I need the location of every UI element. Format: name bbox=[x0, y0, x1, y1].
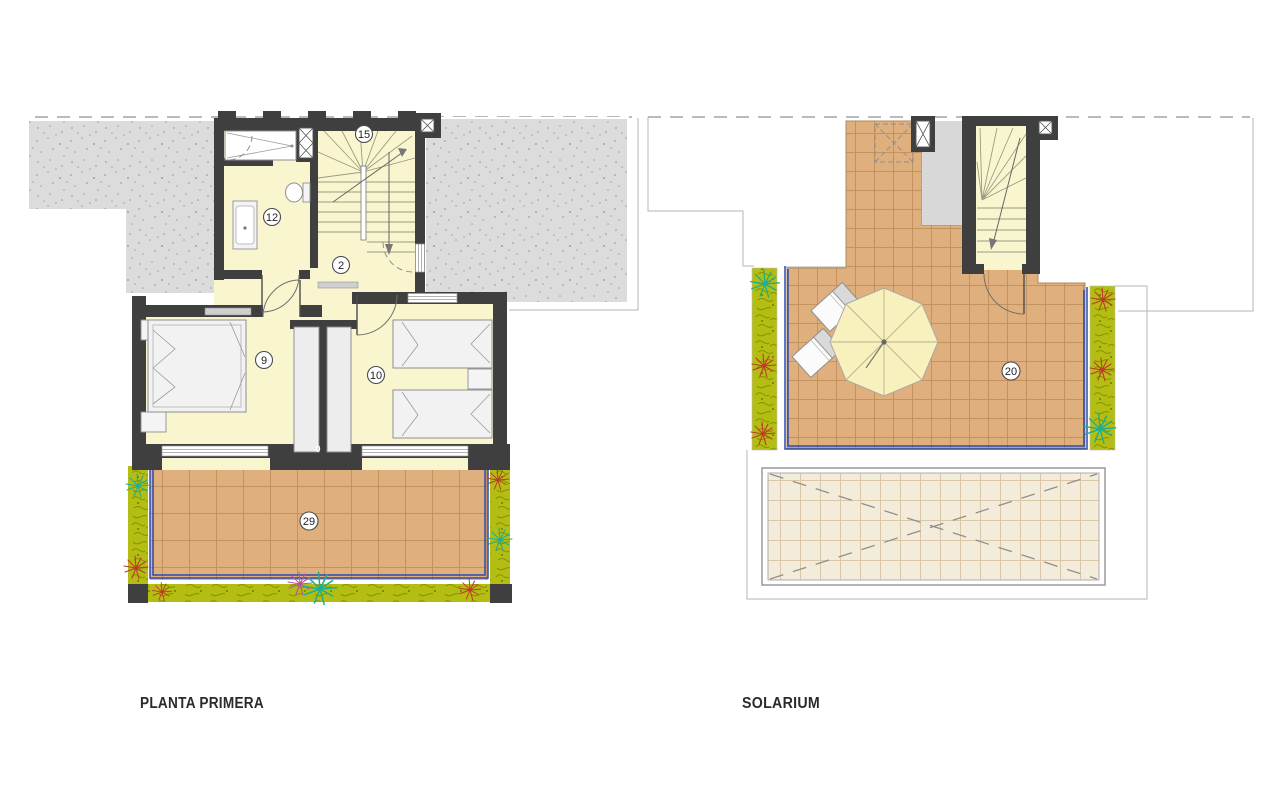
svg-text:20: 20 bbox=[1005, 366, 1017, 378]
room-label: 0 bbox=[315, 444, 320, 454]
svg-text:29: 29 bbox=[303, 516, 315, 528]
svg-text:2: 2 bbox=[338, 260, 344, 272]
planter-left bbox=[752, 268, 777, 450]
umbrella-icon bbox=[830, 288, 938, 396]
terrace-tiles bbox=[150, 462, 488, 580]
wall-niche bbox=[318, 282, 358, 288]
site-outline-right bbox=[1118, 118, 1253, 311]
single-bed-icon bbox=[393, 320, 492, 368]
svg-text:10: 10 bbox=[370, 370, 382, 382]
svg-text:15: 15 bbox=[358, 129, 370, 141]
toilet-icon bbox=[286, 183, 311, 202]
terrace-29 bbox=[124, 456, 512, 604]
shower-icon bbox=[225, 131, 296, 160]
chimney-icon bbox=[911, 116, 935, 152]
plan-planta-primera: 15 12 2 9 10 29 0 PLANTA PRIMERA bbox=[28, 111, 638, 712]
neighbor-roof-right bbox=[425, 118, 628, 303]
single-bed-icon bbox=[393, 390, 492, 438]
room-label: 15 bbox=[356, 126, 373, 143]
planter-corner-left bbox=[128, 584, 148, 603]
svg-text:9: 9 bbox=[261, 355, 267, 367]
wall-niche bbox=[205, 308, 251, 315]
nightstand-icon bbox=[141, 412, 166, 432]
room-label: 20 bbox=[1002, 362, 1020, 380]
room-label: 12 bbox=[264, 209, 281, 226]
room-label: 29 bbox=[300, 512, 318, 530]
plan-title: SOLARIUM bbox=[742, 695, 820, 712]
neighbor-roof-left bbox=[28, 120, 216, 294]
pergola-roof bbox=[762, 468, 1105, 585]
nightstand-icon bbox=[468, 369, 492, 389]
svg-text:12: 12 bbox=[266, 212, 278, 224]
room-label: 10 bbox=[368, 367, 385, 384]
shaft-icon bbox=[299, 128, 313, 158]
room-label: 9 bbox=[256, 352, 273, 369]
plan-title: PLANTA PRIMERA bbox=[140, 695, 264, 712]
site-outline-left bbox=[648, 117, 754, 266]
planter-corner-right bbox=[490, 584, 512, 603]
room-label: 2 bbox=[333, 257, 350, 274]
floor-plan-canvas: 15 12 2 9 10 29 0 PLANTA PRIMERA bbox=[0, 0, 1280, 800]
planter-right bbox=[490, 466, 510, 584]
plan-solarium: 20 SOLARIUM bbox=[648, 116, 1253, 712]
double-bed-icon bbox=[148, 320, 246, 412]
